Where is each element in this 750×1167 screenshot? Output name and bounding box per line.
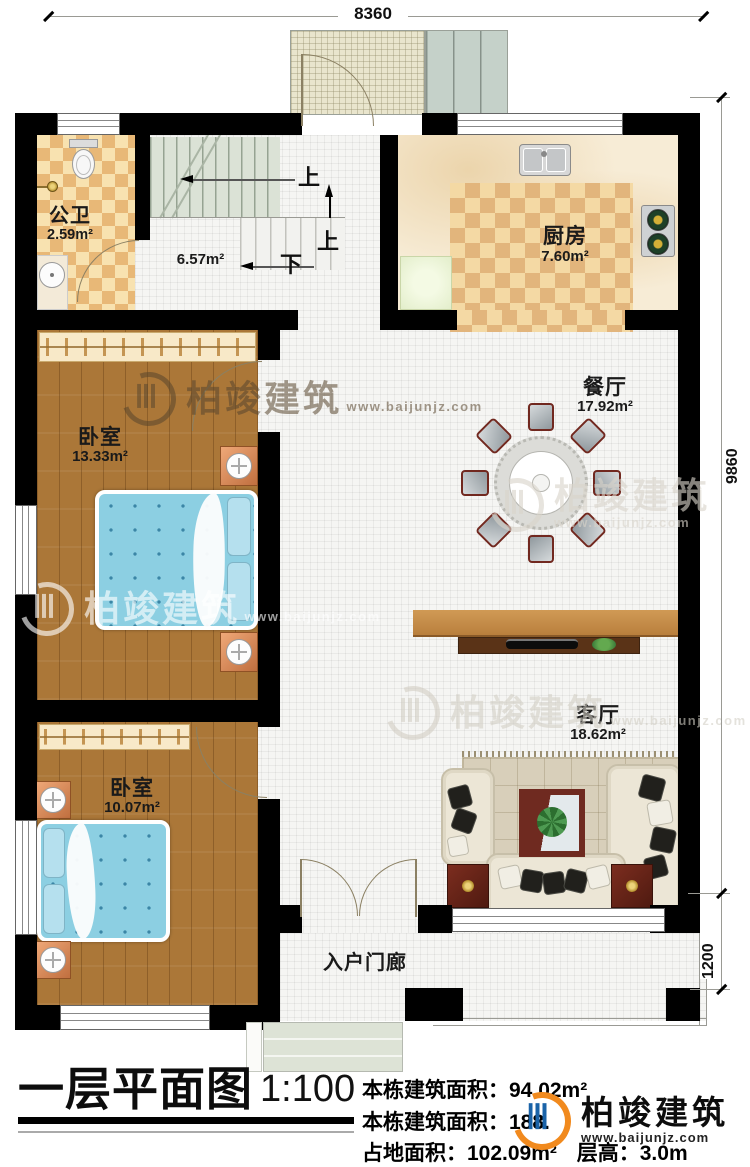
wall [15,113,37,505]
info-line-1-value: 94.02m² [509,1079,587,1102]
info-line-3: 占地面积：102.09m² 层高：3.0m [362,1137,688,1167]
wall [280,905,302,933]
stairs-arrowhead-up [180,175,193,183]
toilet-tank [69,139,98,148]
bathroom-label: 公卫 [33,206,107,227]
floor-plan: 上 上 下 [0,0,750,1165]
lamp [40,787,66,813]
kitchen-mat [400,256,452,310]
dining-chair [461,470,489,496]
wall [380,135,398,310]
window [57,113,120,135]
dim-top-width: 8360 [338,4,408,24]
stairs-up-label-2: 上 [317,224,339,256]
wall [258,799,280,1030]
sofa-pillow [542,871,567,896]
console-plant [592,638,616,651]
kitchen-sink-basin [523,148,543,172]
side-table-medallion [462,880,474,892]
wardrobe [39,724,190,750]
window [15,505,37,595]
wall [422,113,457,135]
wall [15,700,280,722]
info-line-3a-label: 占地面积： [362,1142,467,1165]
stairs-upper-flight [150,137,280,218]
bedroom-lower-area: 10.07m² [87,800,177,816]
window [60,1005,210,1030]
back-porch-panels [425,30,508,115]
sofa-pillow [649,826,677,854]
front-steps [263,1022,403,1072]
toilet-bowl-inner [76,155,91,175]
entry-door-left-leaf [300,859,302,917]
shower-mixer [47,181,58,192]
wall [380,310,457,330]
entry-porch-label: 入户门廊 [295,953,435,974]
wall [258,330,280,360]
entry-door-right-leaf [415,859,417,917]
stairs-down-label: 下 [280,247,302,279]
kitchen-doorway-floor [457,310,625,332]
bed-pillow [227,497,251,556]
wall [258,432,280,700]
dining-table-center [532,474,550,492]
stove-burner [647,209,669,231]
info-line-3b-label: 层高： [577,1142,640,1165]
dim-extension [690,989,730,990]
bed-pillow [227,562,251,621]
sofa-pillow [446,834,469,857]
porch-edge-line [433,1025,707,1026]
coffee-table-plant [537,807,567,837]
info-line-3b-value: 3.0m [640,1142,688,1165]
brand-name: 柏竣建筑 [581,1094,729,1131]
bedroom-upper-label: 卧室 [58,427,142,449]
bathroom-area: 2.59m² [28,228,112,243]
kitchen-label: 厨房 [523,226,607,248]
wall [405,988,463,1021]
title-underline-thin [18,1131,354,1133]
info-line-2-value: 188. [509,1111,550,1134]
lamp [226,453,252,479]
kitchen-faucet [541,151,547,157]
window [457,113,623,135]
info-line-2: 本栋建筑面积：188. [362,1106,550,1136]
dining-chair [528,535,554,563]
tv [506,639,578,649]
page-title: 一层平面图 [18,1053,253,1119]
bedroom-upper-area: 13.33m² [55,449,145,465]
wall [666,988,700,1021]
info-line-3a-value: 102.09m² [467,1142,557,1165]
stairs-arrowhead-vup [325,184,333,197]
stove-burner [647,233,669,255]
dim-extension [690,97,730,98]
dim-porch-depth: 1200 [700,923,718,979]
stairs-up-label: 上 [298,160,320,192]
dim-right-height: 9860 [724,422,742,484]
wall [120,113,302,135]
side-table-medallion [626,880,638,892]
wall [15,310,298,330]
back-door-leaf [301,54,303,126]
sofa-pillow [519,868,544,893]
info-line-1-label: 本栋建筑面积： [362,1079,509,1102]
dining-area: 17.92m² [562,399,648,415]
bed-pillow [43,828,65,878]
lamp [226,639,252,665]
window [15,820,37,935]
dining-chair [528,403,554,431]
wall [418,905,452,933]
dim-extension [688,893,730,894]
sofa-pillow [646,799,674,827]
wardrobe [39,332,256,362]
wall [135,135,150,240]
info-line-1: 本栋建筑面积：94.02m² [362,1074,587,1104]
title-underline [18,1117,354,1124]
info-line-2-label: 本栋建筑面积： [362,1111,509,1134]
dim-line-right [721,98,722,990]
stairs-arrow-line-up [190,179,295,181]
wall [625,310,700,330]
bedroom-lower-label: 卧室 [90,778,174,800]
lamp [40,947,66,973]
living-label: 客厅 [556,705,640,727]
bath-basin-drain [50,273,54,277]
window [452,908,665,932]
wall [678,113,700,933]
kitchen-sink-basin [546,148,566,172]
scale-label: 1:100 [260,1068,355,1111]
stairwell-area: 6.57m² [158,252,243,268]
dining-chair [593,470,621,496]
living-area: 18.62m² [553,727,643,743]
tv-half-wall [413,610,690,637]
kitchen-area: 7.60m² [523,249,607,265]
wall [15,1005,60,1030]
entry-porch-floor [280,933,706,1021]
stairs-landing-line [150,217,345,218]
bed-pillow [43,884,65,934]
dining-label: 餐厅 [563,377,647,399]
